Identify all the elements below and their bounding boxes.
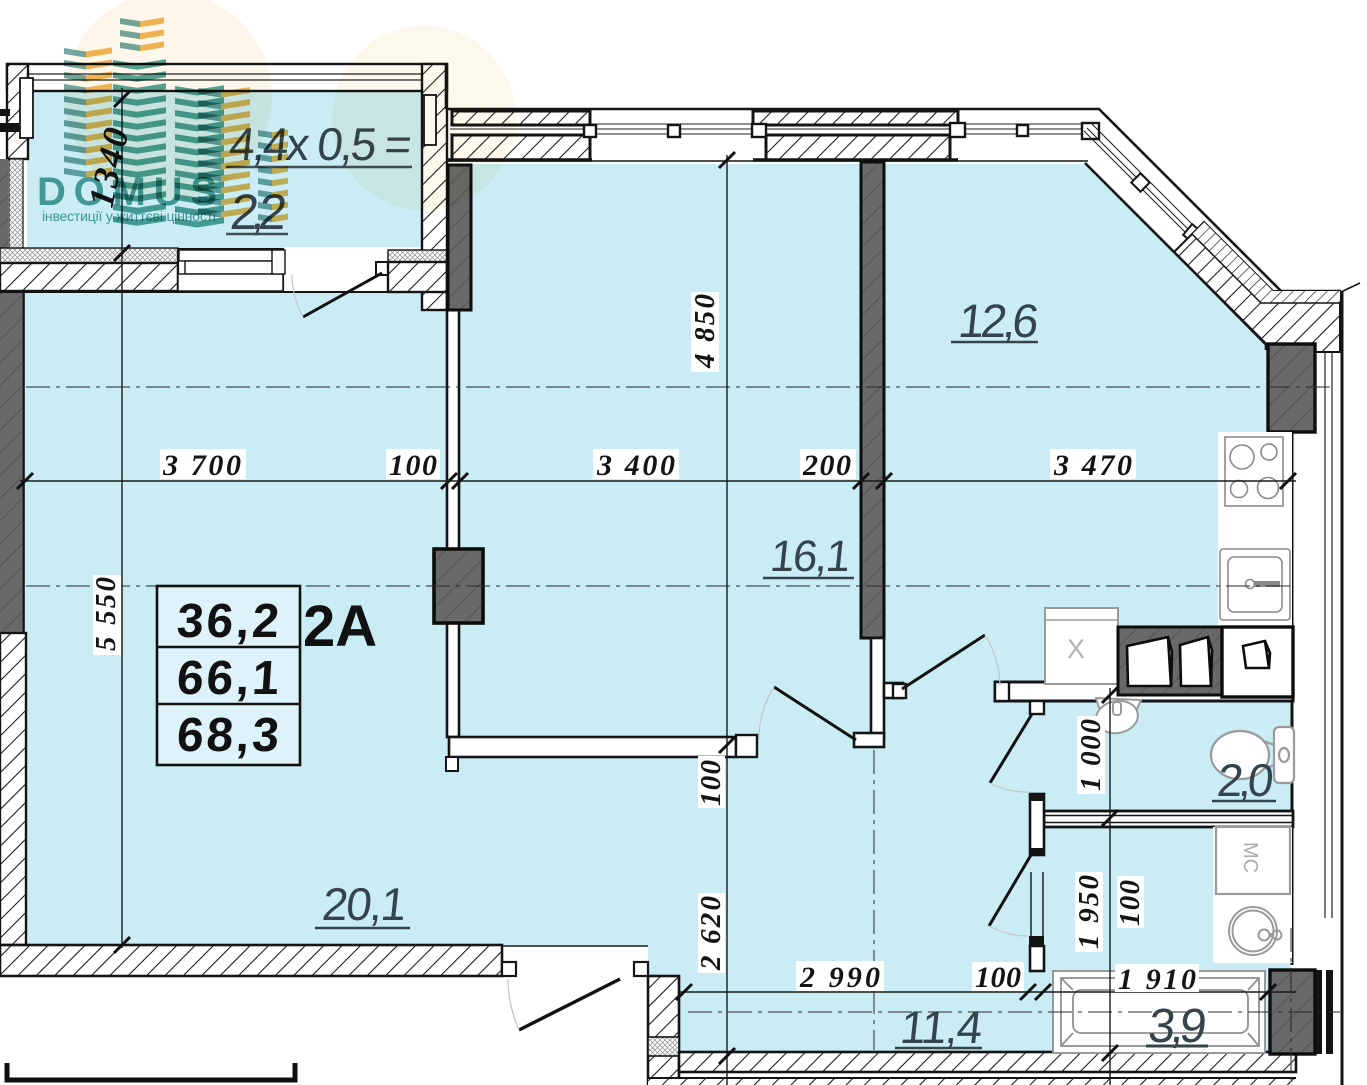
svg-text:100: 100 <box>975 961 1021 994</box>
svg-text:3 700: 3 700 <box>162 449 241 482</box>
svg-text:16,1: 16,1 <box>768 532 853 581</box>
svg-text:2,0: 2,0 <box>1215 754 1276 806</box>
svg-text:200: 200 <box>802 449 851 482</box>
svg-text:66,1: 66,1 <box>175 652 281 705</box>
svg-text:1 910: 1 910 <box>1118 963 1196 996</box>
svg-text:інвестиції у життєві цінності: інвестиції у життєві цінності <box>42 208 216 224</box>
svg-text:11,4: 11,4 <box>898 1001 985 1053</box>
svg-text:1 950: 1 950 <box>1073 875 1105 949</box>
svg-text:68,3: 68,3 <box>175 709 281 762</box>
svg-text:100: 100 <box>695 760 727 806</box>
svg-text:1 000: 1 000 <box>1075 719 1107 791</box>
svg-text:5 550: 5 550 <box>90 577 122 651</box>
svg-text:X: X <box>1067 634 1085 664</box>
svg-text:100: 100 <box>1114 880 1146 926</box>
svg-text:4 850: 4 850 <box>689 294 721 369</box>
svg-text:3 400: 3 400 <box>596 449 675 482</box>
svg-text:МС: МС <box>1239 842 1261 873</box>
svg-text:2A: 2A <box>303 594 377 659</box>
svg-text:20,1: 20,1 <box>320 878 409 930</box>
svg-text:2 990: 2 990 <box>799 961 880 994</box>
svg-text:2 620: 2 620 <box>695 896 727 971</box>
svg-text:100: 100 <box>389 449 437 482</box>
svg-text:3 470: 3 470 <box>1053 449 1132 482</box>
svg-text:12,6: 12,6 <box>956 294 1042 347</box>
svg-text:36,2: 36,2 <box>175 595 281 648</box>
